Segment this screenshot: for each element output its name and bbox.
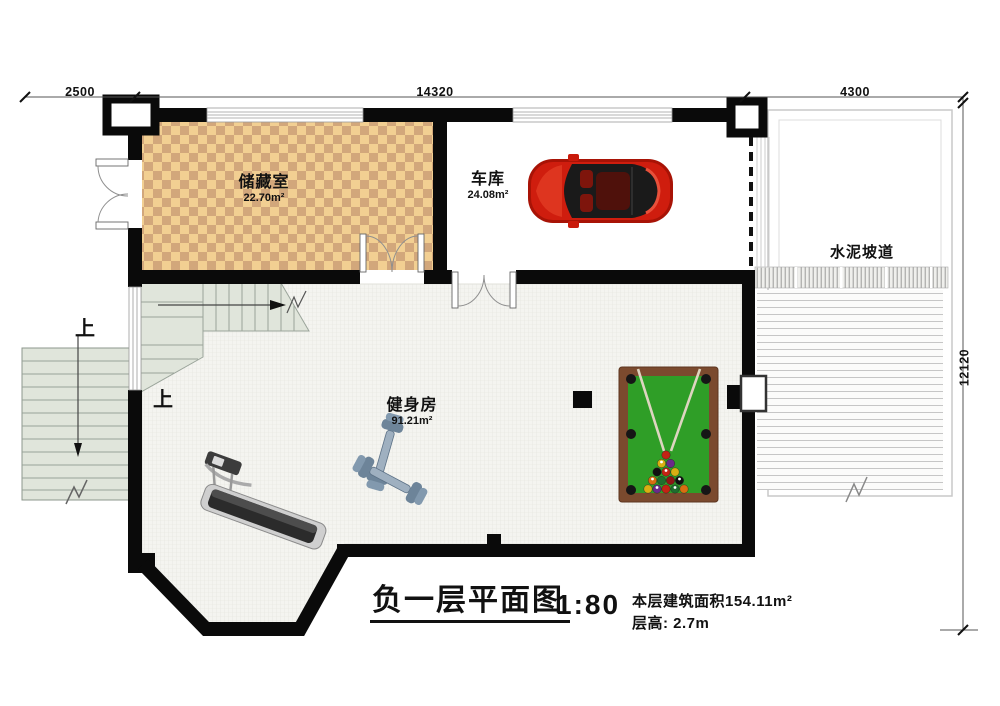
pool-table bbox=[619, 367, 718, 502]
car-seat bbox=[580, 194, 593, 212]
stairs-up-label-inner: 上 bbox=[148, 388, 178, 412]
room-name-storage: 储藏室 bbox=[194, 173, 334, 192]
car-mirror bbox=[568, 154, 579, 161]
exterior-stairs bbox=[22, 336, 130, 504]
storage-top-window bbox=[207, 108, 363, 122]
ramp-treads bbox=[757, 290, 943, 490]
plan-floor-height-note: 层高: 2.7m bbox=[632, 615, 709, 633]
plan-area-note: 本层建筑面积154.11m² bbox=[632, 593, 792, 611]
room-label-gym: 健身房 91.21m² bbox=[342, 396, 482, 428]
floor-plan-canvas: 2500 14320 4300 12120 储藏室 22.70m² 车库 24.… bbox=[0, 0, 1000, 706]
plan-title: 负一层平面图 bbox=[370, 585, 570, 623]
room-area-storage: 22.70m² bbox=[194, 192, 334, 205]
ramp-label: 水泥坡道 bbox=[797, 244, 927, 262]
left-wall-opening bbox=[129, 287, 141, 390]
chimney-top-right bbox=[731, 101, 763, 133]
room-name-gym: 健身房 bbox=[342, 396, 482, 415]
ramp-hatch-band bbox=[755, 267, 948, 288]
column bbox=[573, 391, 592, 408]
dimension-top-middle: 14320 bbox=[395, 85, 475, 100]
dimension-top-left: 2500 bbox=[40, 85, 120, 100]
car bbox=[528, 154, 673, 228]
plan-scale: 1:80 bbox=[556, 588, 620, 622]
ramp-area bbox=[755, 110, 952, 502]
car-mirror bbox=[568, 221, 579, 228]
car-seat bbox=[580, 170, 593, 188]
gym-right-window bbox=[741, 376, 766, 411]
garage-top-window bbox=[513, 108, 672, 122]
room-label-garage: 车库 24.08m² bbox=[438, 170, 538, 202]
room-area-gym: 91.21m² bbox=[342, 415, 482, 428]
dimension-right-side: 12120 bbox=[958, 336, 973, 400]
room-label-storage: 储藏室 22.70m² bbox=[194, 173, 334, 205]
storage-left-double-door bbox=[96, 159, 128, 229]
dimension-top-right: 4300 bbox=[815, 85, 895, 100]
room-area-garage: 24.08m² bbox=[438, 189, 538, 202]
room-name-garage: 车库 bbox=[438, 170, 538, 189]
chimney-top-left bbox=[107, 99, 155, 131]
stairs-up-label-outer: 上 bbox=[70, 317, 100, 341]
